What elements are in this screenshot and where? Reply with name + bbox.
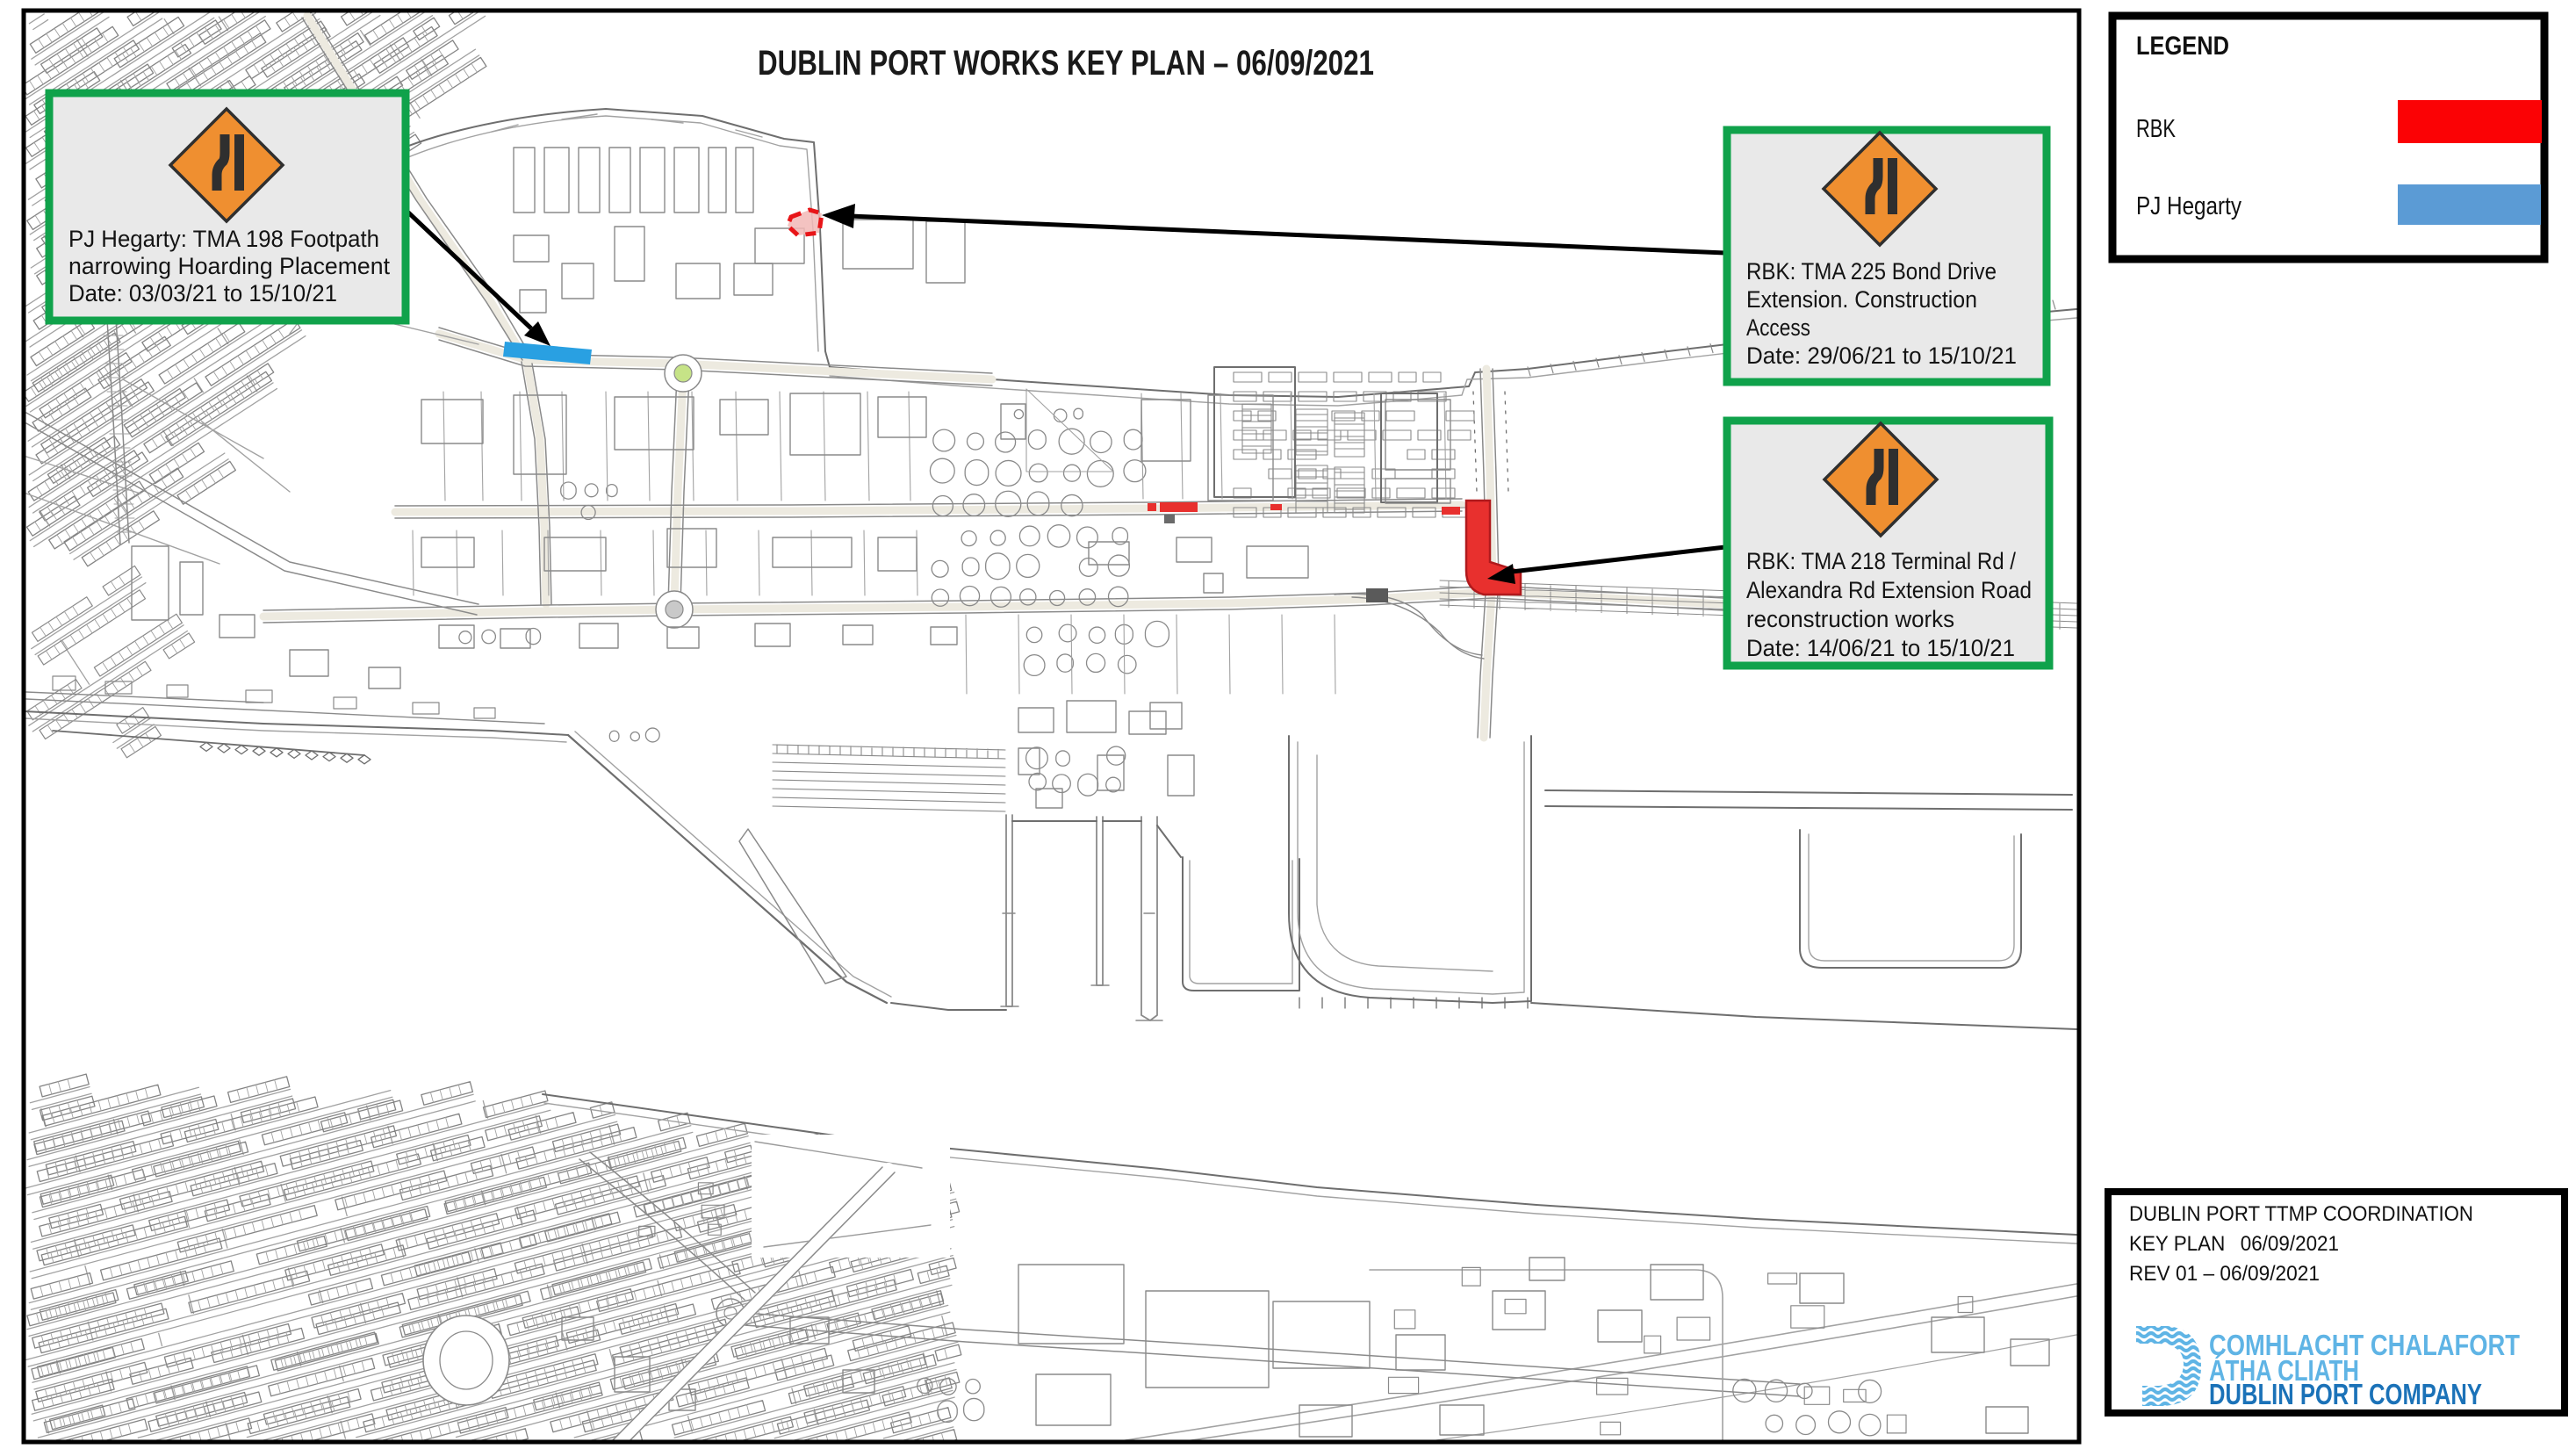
svg-text:Date: 14/06/21 to 15/10/21: Date: 14/06/21 to 15/10/21 (1746, 635, 2015, 661)
svg-text:DUBLIN PORT COMPANY: DUBLIN PORT COMPANY (2209, 1378, 2482, 1410)
svg-text:Date: 03/03/21 to 15/10/21: Date: 03/03/21 to 15/10/21 (68, 280, 337, 306)
svg-text:DUBLIN PORT WORKS KEY PLAN – 0: DUBLIN PORT WORKS KEY PLAN – 06/09/2021 (758, 44, 1374, 83)
svg-text:REV 01 – 06/09/2021: REV 01 – 06/09/2021 (2129, 1262, 2320, 1286)
svg-text:Alexandra Rd Extension Road: Alexandra Rd Extension Road (1746, 577, 2032, 603)
svg-text:Date: 29/06/21 to 15/10/21: Date: 29/06/21 to 15/10/21 (1746, 342, 2017, 369)
svg-text:DUBLIN PORT TTMP COORDINATION: DUBLIN PORT TTMP COORDINATION (2129, 1202, 2473, 1226)
svg-text:PJ Hegarty: PJ Hegarty (2136, 192, 2241, 220)
svg-text:RBK: TMA 218 Terminal Rd /: RBK: TMA 218 Terminal Rd / (1746, 548, 2016, 574)
svg-text:RBK: TMA 225 Bond Drive: RBK: TMA 225 Bond Drive (1746, 258, 1997, 285)
svg-text:Extension. Construction: Extension. Construction (1746, 286, 1977, 313)
svg-text:LEGEND: LEGEND (2136, 32, 2229, 61)
svg-text:Access: Access (1746, 314, 1810, 341)
svg-text:PJ Hegarty: TMA 198 Footpath: PJ Hegarty: TMA 198 Footpath (68, 226, 379, 252)
svg-text:KEY PLAN 06/09/2021: KEY PLAN 06/09/2021 (2129, 1232, 2339, 1256)
svg-text:narrowing Hoarding Placement: narrowing Hoarding Placement (68, 253, 390, 279)
svg-text:reconstruction works: reconstruction works (1746, 606, 1954, 632)
svg-text:RBK: RBK (2136, 115, 2176, 143)
